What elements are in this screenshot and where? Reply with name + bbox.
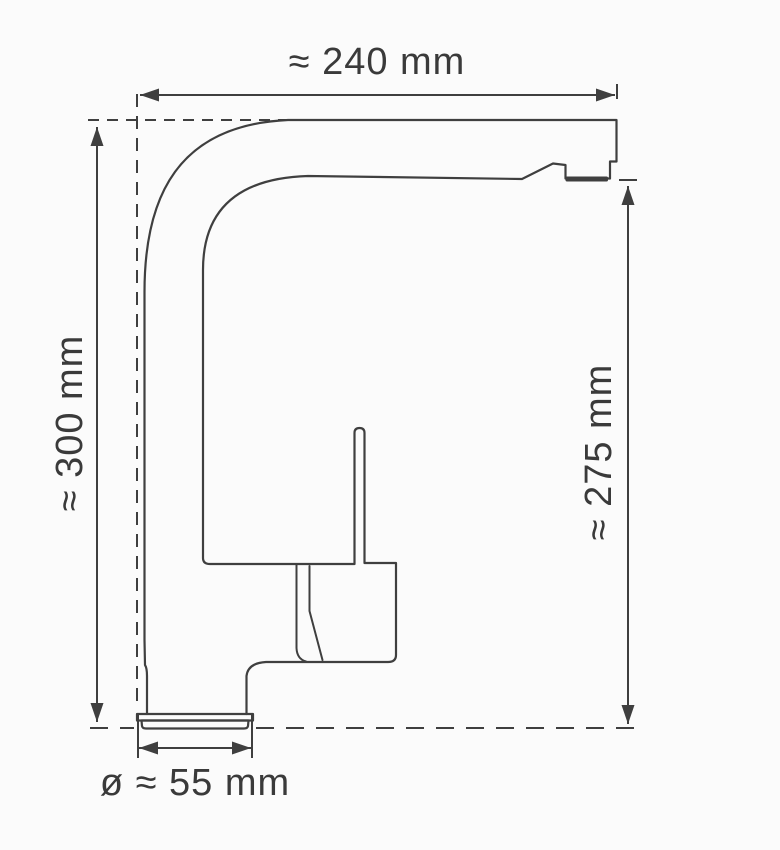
faucet-outline — [145, 120, 617, 714]
left-height-label: ≈ 300 mm — [49, 335, 91, 512]
construction-lines — [88, 94, 640, 728]
handle-collar-edge-left — [297, 565, 307, 662]
faucet-drawing — [137, 120, 617, 729]
base-flange-lip — [142, 721, 249, 729]
handle-collar-edge-slanted — [310, 566, 323, 660]
faucet-aerator-outlet — [566, 177, 609, 182]
base-diameter-label: ø ≈ 55 mm — [100, 762, 290, 804]
dimension-labels: ≈ 240 mm ≈ 300 mm ≈ 275 mm ø ≈ 55 mm — [49, 41, 620, 804]
dimension-lines — [97, 84, 637, 758]
right-height-label: ≈ 275 mm — [578, 364, 620, 541]
diagram-canvas: ≈ 240 mm ≈ 300 mm ≈ 275 mm ø ≈ 55 mm — [0, 0, 780, 850]
top-width-label: ≈ 240 mm — [289, 41, 466, 83]
faucet-dimension-diagram: ≈ 240 mm ≈ 300 mm ≈ 275 mm ø ≈ 55 mm — [0, 0, 780, 850]
